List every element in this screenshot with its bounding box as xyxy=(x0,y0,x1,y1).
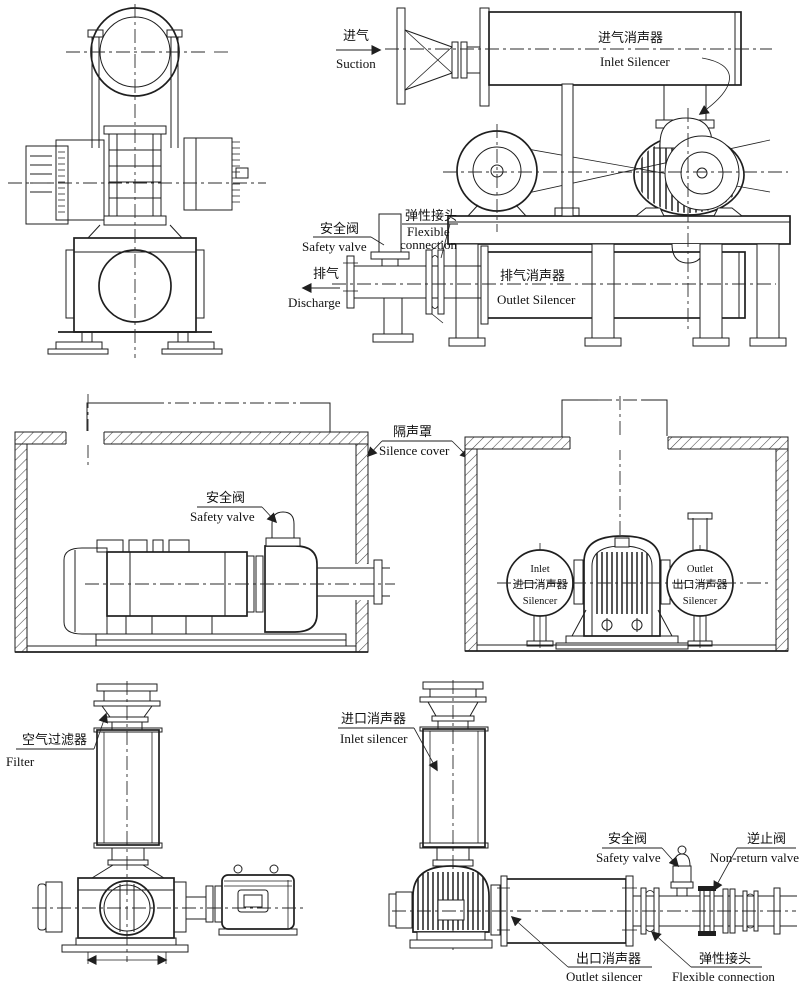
svg-text:Non-return valve: Non-return valve xyxy=(710,850,799,865)
blower-body xyxy=(38,865,188,952)
svg-text:Outlet Silencer: Outlet Silencer xyxy=(497,292,576,307)
flexible-connection-label: 弹性接头 Flexible connection xyxy=(652,932,775,984)
svg-text:Discharge: Discharge xyxy=(288,295,341,310)
safety-valve-label: 安全阀 Safety valve xyxy=(190,490,276,524)
discharge-label: 排气 Discharge xyxy=(288,266,341,310)
inlet-silencer-cylinder xyxy=(489,12,741,85)
svg-text:弹性接头: 弹性接头 xyxy=(699,951,751,966)
svg-text:安全阀: 安全阀 xyxy=(608,831,647,846)
inlet-silencer-vertical xyxy=(420,727,488,866)
svg-text:排气: 排气 xyxy=(313,266,339,281)
suction-label: 进气 Suction xyxy=(336,28,380,71)
flexible-connection-label: 弹性接头 Flexible connection xyxy=(400,208,458,258)
svg-text:Silencer: Silencer xyxy=(683,596,718,607)
gearbox-right xyxy=(184,138,248,210)
svg-text:Outlet: Outlet xyxy=(687,564,713,575)
diagram-canvas: 进气 Suction 进气消声器 Inlet Silencer 安全阀 Safe… xyxy=(0,0,800,985)
svg-text:出口消声器: 出口消声器 xyxy=(576,951,641,966)
vertical-silencer xyxy=(94,728,162,865)
drive-motor xyxy=(186,865,297,935)
silence-cover-left-wall xyxy=(465,449,477,651)
svg-text:Inlet silencer: Inlet silencer xyxy=(340,731,408,746)
svg-text:Safety valve: Safety valve xyxy=(302,239,367,254)
svg-text:弹性接头: 弹性接头 xyxy=(405,208,457,223)
safety-valve-label: 安全阀 Safety valve xyxy=(302,221,384,254)
platform-slab xyxy=(448,216,790,244)
motor-left xyxy=(26,140,104,224)
safety-valve xyxy=(671,846,693,896)
svg-text:Safety valve: Safety valve xyxy=(596,850,661,865)
figure-vertical-blower-silencers: 进口消声器 Inlet silencer 安全阀 Safety valve 逆止… xyxy=(338,680,799,984)
blower-installation-diagram: 进气 Suction 进气消声器 Inlet Silencer 安全阀 Safe… xyxy=(0,0,800,985)
blower-pulley xyxy=(665,136,739,210)
svg-text:安全阀: 安全阀 xyxy=(320,221,359,236)
non-return-valve-label: 逆止阀 Non-return valve xyxy=(710,831,799,890)
svg-text:进口消声器: 进口消声器 xyxy=(513,577,568,591)
blower-dome xyxy=(389,866,500,948)
figure-side-installation: 进气 Suction 进气消声器 Inlet Silencer 安全阀 Safe… xyxy=(288,8,790,346)
svg-text:Outlet silencer: Outlet silencer xyxy=(566,969,643,984)
silence-cover-left-wall xyxy=(15,444,27,652)
filter-label: 空气过滤器 Filter xyxy=(6,714,106,769)
silencer-support-column xyxy=(562,84,573,216)
inlet-silencer-leader xyxy=(700,58,730,114)
svg-text:Safety valve: Safety valve xyxy=(190,509,255,524)
silence-cover-label: 隔声罩 Silence cover xyxy=(368,424,469,458)
svg-text:空气过滤器: 空气过滤器 xyxy=(22,732,87,747)
svg-text:Inlet Silencer: Inlet Silencer xyxy=(600,54,670,69)
svg-text:Silencer: Silencer xyxy=(523,596,558,607)
svg-text:安全阀: 安全阀 xyxy=(206,490,245,505)
svg-text:Flexible connection: Flexible connection xyxy=(672,969,775,984)
svg-text:逆止阀: 逆止阀 xyxy=(747,831,786,846)
silence-cover-right-wall xyxy=(356,444,368,652)
figure-enclosure-right: Inlet 进口消声器 Silencer Outlet 出口消声器 Silenc… xyxy=(465,396,788,651)
suction-duct xyxy=(397,8,489,106)
svg-text:进气消声器: 进气消声器 xyxy=(598,30,663,45)
figure-enclosure-left: 安全阀 Safety valve xyxy=(15,394,395,652)
suction-label-en: Suction xyxy=(336,56,376,71)
figure-blower-front-view xyxy=(8,4,266,358)
flexible-connection xyxy=(426,241,444,323)
svg-text:Filter: Filter xyxy=(6,754,35,769)
svg-text:Inlet: Inlet xyxy=(530,564,549,575)
svg-text:出口消声器: 出口消声器 xyxy=(673,577,728,591)
suction-label-cn: 进气 xyxy=(343,28,369,43)
svg-text:Silence cover: Silence cover xyxy=(379,443,450,458)
svg-text:connection: connection xyxy=(400,237,458,252)
svg-text:隔声罩: 隔声罩 xyxy=(393,424,432,439)
safety-valve-label: 安全阀 Safety valve xyxy=(596,831,678,866)
blower-package xyxy=(64,540,346,646)
outlet-pipe xyxy=(317,560,390,604)
svg-text:排气消声器: 排气消声器 xyxy=(500,268,565,283)
inlet-silencer-label: 进口消声器 Inlet silencer xyxy=(338,711,437,770)
outlet-silencer-label: 排气消声器 Outlet Silencer xyxy=(497,268,576,307)
silence-cover-right-wall xyxy=(776,449,788,651)
svg-text:进口消声器: 进口消声器 xyxy=(341,711,406,726)
figure-vertical-blower-filter: 空气过滤器 Filter xyxy=(6,681,304,964)
